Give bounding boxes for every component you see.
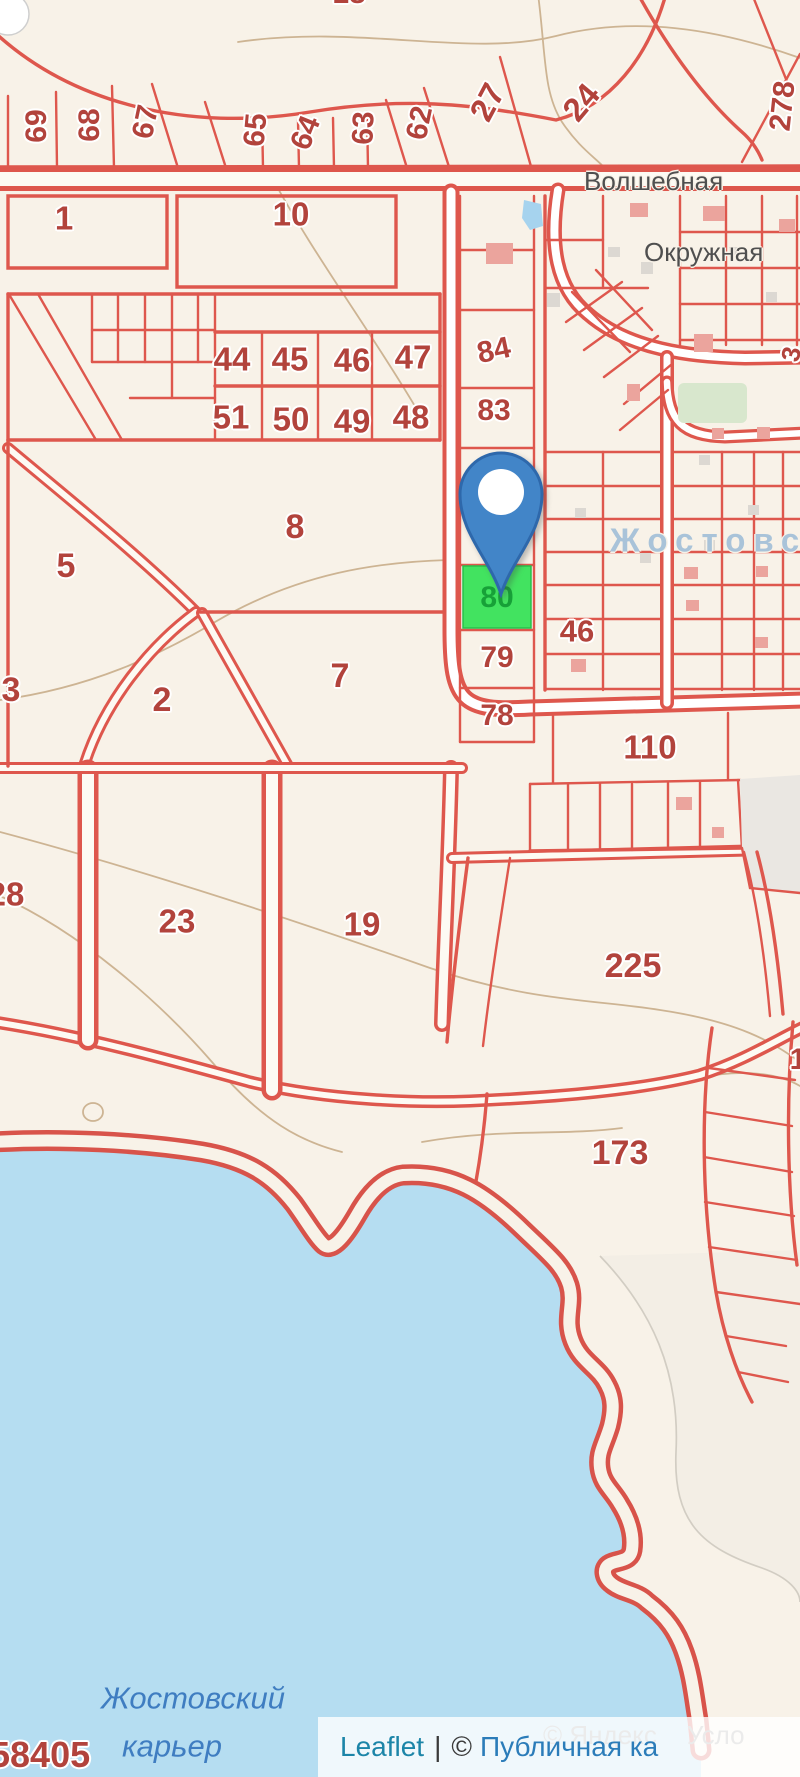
map-linework: [0, 0, 800, 1777]
provider-link[interactable]: Публичная ка: [480, 1731, 658, 1763]
marker-inner-circle: [478, 469, 524, 515]
map-marker-pin[interactable]: [449, 436, 553, 598]
attribution-separator: |: [434, 1731, 441, 1763]
attribution-bar: Leaflet | © Публичная ка: [318, 1717, 800, 1777]
map-canvas[interactable]: 6968676564636227242781811044454647515049…: [0, 0, 800, 1777]
copyright-symbol: ©: [451, 1731, 472, 1763]
leaflet-link[interactable]: Leaflet: [340, 1731, 424, 1763]
